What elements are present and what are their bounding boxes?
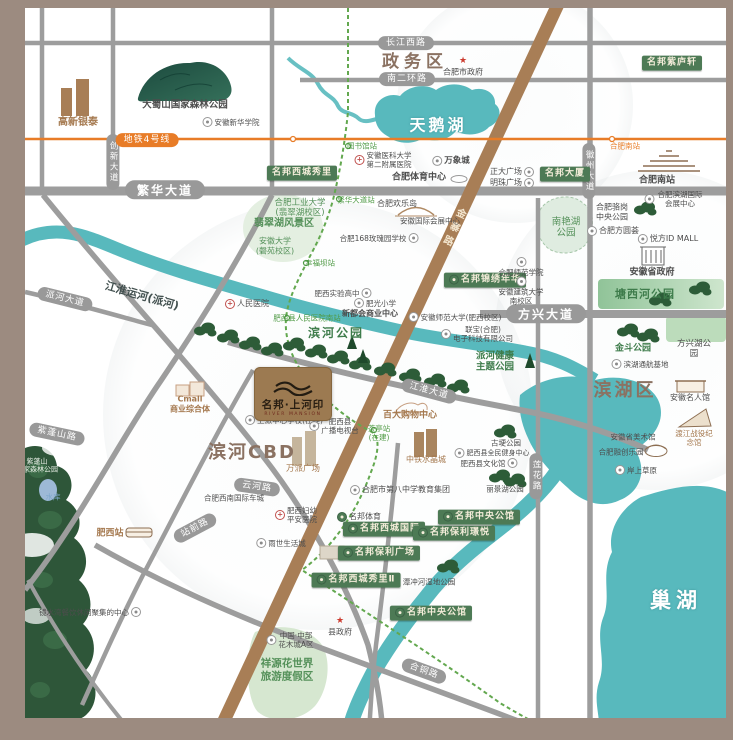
school-icon <box>354 298 364 308</box>
poi-luogang-central-park: 合肥骆岗 中央公园 <box>596 202 628 221</box>
poi-tanchonghe-wetland-park: 潭冲河湿地公园 <box>403 578 456 587</box>
poi-hefei-city-gov: 合肥市政府 <box>443 57 483 78</box>
river-label-jianghuai-canal: 江淮运河(派河) <box>104 279 181 313</box>
district-binhuqu: 滨湖区 <box>594 380 657 402</box>
poi-yushi-life-city: 雨世生活城 <box>256 538 306 548</box>
shop-icon <box>645 194 655 204</box>
badge-mingbang-dasha: 名邦大厦 <box>540 167 590 182</box>
poi-yuefang-id-mall: 悦方ID MALL <box>638 234 698 244</box>
badge-mingbang-xicheng-xiuli: 名邦西城秀里 <box>267 166 337 181</box>
shop-icon <box>131 607 141 617</box>
poi-fangxinghu-park: 方兴湖公园 <box>675 339 714 359</box>
poi-zhongtie-crystal-city: 中铁水晶城 <box>406 455 446 465</box>
project-logo-title: 名邦·上河印 <box>262 397 325 412</box>
poi-hefei-huanledao: 合肥欢乐岛 <box>377 199 417 209</box>
poi-feixi-railway-station: 肥西站 <box>96 529 123 540</box>
road-changjiang-west-road: 长江西路 <box>378 36 434 50</box>
poi-cmall-complex: Cmall 商业综合体 <box>170 394 210 413</box>
metro-station-chating: 茶亭站 (在建) <box>368 424 391 442</box>
hospital-icon <box>225 299 235 309</box>
badge-mingbang-baoli-jingyue: 名邦保利璟悦 <box>413 526 495 541</box>
brand-icon <box>317 575 327 585</box>
badge-mingbang-baoli-guangchang: 名邦保利广场 <box>338 546 420 561</box>
poi-feixi-shiyan-high-school: 肥西实验高中 <box>315 288 372 298</box>
brand-icon <box>343 548 353 558</box>
shop-icon <box>309 421 319 431</box>
school-icon <box>203 117 213 127</box>
brand-icon <box>348 524 358 534</box>
poi-fangyuanhui: 合肥方圆荟 <box>587 226 639 236</box>
poi-zhengda-plaza: 正大广场 <box>490 167 534 177</box>
poi-renmin-hospital: 人民医院 <box>225 299 269 309</box>
poi-gaoxin-yintai: 高新银泰 <box>58 117 98 129</box>
project-logo-subtitle: RIVER MANSION <box>264 412 321 417</box>
road-jianghuai-avenue: 江淮大道 <box>400 377 458 405</box>
metro-station-tushuguan: 图书馆站 <box>347 142 377 151</box>
poi-anshang-caoyuan: 岸上草原 <box>615 465 657 475</box>
road-zhanqian-road: 站前路 <box>171 511 218 545</box>
school-icon <box>516 277 526 287</box>
school-icon <box>350 485 360 495</box>
road-nanerhuan-road: 南二环路 <box>379 72 435 86</box>
poi-hefeinan-railway-station: 合肥南站 <box>639 176 675 187</box>
poi-anhui-art-museum: 安徽省美术馆 <box>611 433 656 442</box>
shop-icon <box>256 538 266 548</box>
metro-station-hefeinan: 合肥南站 <box>610 142 640 151</box>
road-lianhua-road: 莲花路 <box>529 453 542 499</box>
project-logo-card: 名邦·上河印 RIVER MANSION <box>254 367 332 421</box>
poi-mingbang-sports: 名邦体育 <box>337 512 381 522</box>
poi-gugeng-park: 古埂公园 <box>491 439 521 448</box>
poi-nanyanhu-park: 南艳湖 公园 <box>552 217 581 240</box>
shop-icon <box>615 465 625 475</box>
poi-anyi-second-hospital: 安徽医科大学 第二附属医院 <box>355 151 412 169</box>
poi-tangxihe-park: 塘西河公园 <box>615 287 675 300</box>
poi-dashushan-forest-park: 大蜀山国家森林公园 <box>142 99 228 110</box>
poi-feiguang-primary-school: 肥光小学 <box>354 298 396 308</box>
lake-label-chaohu: 巢湖 <box>650 588 702 613</box>
shop-icon <box>612 359 622 369</box>
metro-line4-label: 地铁4号线 <box>116 133 179 147</box>
shop-icon <box>432 156 442 166</box>
hospital-icon <box>275 510 285 520</box>
poi-no8-middle-school-group: 合肥市第八中学教育集团 <box>350 485 450 495</box>
gov-icon <box>458 57 468 67</box>
poi-anhui-normal-university: 安徽师范大学(肥西校区) <box>409 312 502 322</box>
poi-hefei-normal-college: 合肥师范学院 <box>499 257 544 277</box>
poi-anhui-provincial-gov: 安徽省政府 <box>629 268 674 279</box>
poi-hefei-sports-center: 合肥体育中心 <box>392 173 446 184</box>
road-hetong-road: 合铜路 <box>400 657 448 686</box>
road-fangxing-avenue: 方兴大道 <box>506 304 586 323</box>
badge-mingbang-zhongyang-gongguan-1: 名邦中央公馆 <box>438 510 520 525</box>
frame-top <box>0 0 733 8</box>
road-jinzhai-road: 金寨路 <box>437 205 467 251</box>
poi-huamucheng-a: 中国·中部 花木城A区 <box>266 631 313 649</box>
road-paihe-avenue: 派河大道 <box>36 286 94 313</box>
poi-reservoir: 水库 <box>46 493 61 502</box>
poi-lijinghu-park: 丽景湖公园 <box>486 485 524 494</box>
map-canvas: 政务区天鹅湖滨河CBD滨湖区巢湖长江西路南二环路繁华大道派河大道方兴大道江淮大道… <box>0 0 733 740</box>
road-fanhua-avenue: 繁华大道 <box>125 180 205 199</box>
hospital-icon <box>355 155 365 165</box>
poi-xinduhui-commercial-center: 新都会商业中心 <box>342 309 398 319</box>
shop-icon <box>508 458 518 468</box>
poi-anhui-intl-expo-center: 安徽国际会展中心 <box>400 217 460 226</box>
gov-icon <box>335 617 345 627</box>
metro-station-fanhua-dadao: 繁华大道站 <box>337 196 375 205</box>
wave-logo-icon <box>272 381 314 396</box>
poi-xiangyuan-flower-world: 祥源花世界 旅游度假区 <box>261 657 314 682</box>
poi-mingzhu-plaza: 明珠广场 <box>490 178 534 188</box>
district-binhe-cbd: 滨河CBD <box>208 442 296 464</box>
metro-station-xingfuba: 幸福坝站 <box>305 259 335 268</box>
labels-layer: 政务区天鹅湖滨河CBD滨湖区巢湖长江西路南二环路繁华大道派河大道方兴大道江淮大道… <box>0 0 733 740</box>
poi-wanxiangcheng: 万象城 <box>432 156 470 166</box>
poi-anhui-university: 安徽大学 (磬苑校区) <box>256 236 294 255</box>
brand-icon <box>337 512 347 522</box>
poi-rongchuang-leyuan: 合肥融创乐园 <box>599 448 644 457</box>
poi-paihe-health-theme-park: 派河健康 主题公园 <box>476 351 514 374</box>
frame-right <box>726 0 733 740</box>
poi-binhu-tonghang-base: 滨湖通航基地 <box>612 359 669 369</box>
poi-wanpai-plaza: 万派广场 <box>286 464 320 474</box>
poi-xinhua-college: 安徽新华学院 <box>203 117 260 127</box>
poi-binhu-intl-expo-center: 合肥滨湖国际会展中心 <box>645 190 704 208</box>
shop-icon <box>587 226 597 236</box>
shop-icon <box>524 167 534 177</box>
district-zhengwuqu: 政务区 <box>382 52 448 72</box>
badge-mingbang-xicheng-xiuli-2: 名邦西城秀里Ⅱ <box>312 573 401 588</box>
brand-icon <box>418 528 428 538</box>
poi-feixi-fitness-center: 肥西县全民健身中心 <box>455 448 530 458</box>
poi-feicuihu-scenic: 翡翠湖风景区 <box>254 218 314 230</box>
poi-baida-shopping-center: 百大购物中心 <box>383 411 437 422</box>
school-icon <box>408 233 418 243</box>
shop-icon <box>266 635 276 645</box>
poi-southwest-intl-auto-city: 合肥西南国际车城 <box>204 494 264 503</box>
shop-icon <box>441 329 451 339</box>
poi-county-gov: 县政府 <box>328 617 352 638</box>
poi-feixi-culture-hall: 肥西县文化馆 <box>461 458 518 468</box>
brand-icon <box>449 275 459 285</box>
lake-label-tianehu: 天鹅湖 <box>409 115 466 134</box>
road-zipengshan-road: 紫蓬山路 <box>28 421 86 446</box>
poi-fuyou-pingan-hospital: 肥西妇幼 平安医院 <box>275 506 317 524</box>
brand-icon <box>443 512 453 522</box>
badge-mingbang-zhongyang-gongguan-2: 名邦中央公馆 <box>390 606 472 621</box>
metro-station-renmin-hospital-south: 肥西县人民医院南站 <box>273 314 341 323</box>
shop-icon <box>638 234 648 244</box>
poi-anhui-mingren-hall: 安徽名人馆 <box>670 393 710 403</box>
poi-binhe-park: 滨河公园 <box>308 326 364 340</box>
frame-left <box>0 0 25 740</box>
shop-icon <box>455 448 465 458</box>
poi-lianbao-electronics: 联宝(合肥) 电子科技有限公司 <box>441 325 513 343</box>
shop-icon <box>524 178 534 188</box>
poi-dujiang-memorial: 渡江战役纪念馆 <box>675 429 714 447</box>
brand-icon <box>395 608 405 618</box>
school-icon <box>516 257 526 267</box>
poi-anhui-jianzhu-university: 安徽建筑大学 南校区 <box>499 277 544 306</box>
poi-168-rose-school: 合肥168玫瑰园学校 <box>340 233 419 243</box>
poi-jindou-park: 金斗公园 <box>615 344 651 355</box>
poi-jingshuiwan-dining-center: 镜水湾餐饮休闲聚集的中心 <box>39 607 141 617</box>
school-icon <box>409 312 419 322</box>
poi-hefei-univ-technology: 合肥工业大学 (翡翠湖校区) <box>274 198 325 218</box>
badge-mingbang-ziluxuan: 名邦紫庐轩 <box>642 56 702 71</box>
school-icon <box>362 288 372 298</box>
frame-bottom <box>0 718 733 740</box>
